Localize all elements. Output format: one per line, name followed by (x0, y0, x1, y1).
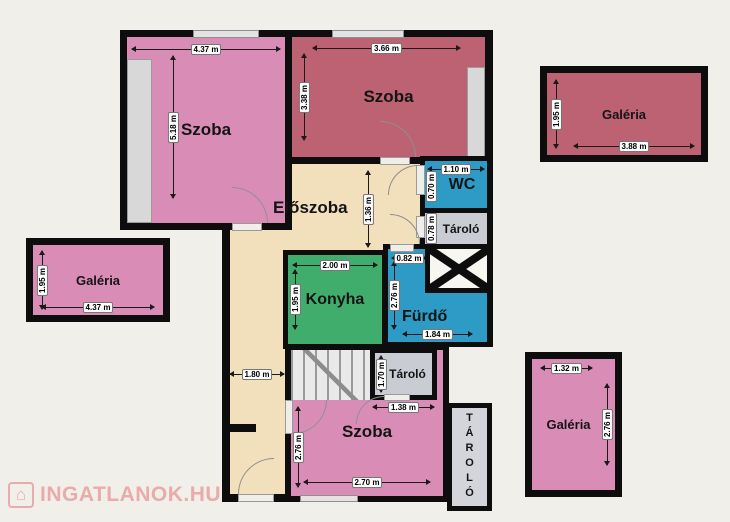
door-opening (390, 244, 414, 252)
stairwell-void-hatch (425, 244, 492, 293)
watermark-text: INGATLANOK.HU (40, 483, 221, 507)
house-icon: ⌂ (8, 482, 34, 508)
dim-height: 1.95 m (550, 79, 562, 149)
door-opening (238, 494, 274, 502)
closet-strip (467, 67, 485, 157)
dim-height: 3.38 m (298, 53, 310, 141)
dim-height: 2.76 m (388, 261, 400, 330)
dim-width: 3.66 m (312, 42, 461, 54)
dim-hall-depth: 1.36 m (362, 170, 374, 248)
dim-height: 0.70 m (425, 171, 437, 202)
wall-stub (222, 424, 256, 432)
room-label: Szoba (342, 422, 392, 442)
room-label: Szoba (181, 120, 231, 140)
dim-width: 2.70 m (303, 476, 431, 488)
door-opening (384, 394, 410, 401)
window (193, 30, 259, 38)
room-szoba-top-left: 4.37 m 5.18 m Szoba (120, 30, 292, 230)
room-label: Konyha (306, 291, 365, 309)
dim-width: 4.37 m (131, 43, 281, 55)
room-label: Fürdő (402, 308, 447, 326)
floor-plan: 4.37 m 5.18 m Szoba 3.66 m 3.38 m Szoba … (0, 0, 730, 522)
room-label: Tároló (389, 367, 426, 381)
room-label: Tároló (443, 222, 480, 236)
dim-height: 0.78 m (425, 214, 437, 243)
dim-height: 5.18 m (167, 55, 179, 199)
room-label-eloszoba: Előszoba (273, 198, 348, 218)
dim-width: 1.84 m (402, 328, 473, 340)
closet-strip (127, 59, 152, 223)
room-label: Szoba (363, 87, 413, 107)
door-opening (285, 400, 293, 434)
door-opening (380, 157, 410, 165)
dim-height: 1.70 m (375, 355, 387, 393)
room-label: TÁROLÓ (464, 412, 476, 502)
dim-height: 2.76 m (601, 383, 613, 466)
room-tarolo-vertical: TÁROLÓ (447, 403, 492, 511)
room-label: Galéria (602, 107, 646, 122)
room-label: WC (449, 176, 476, 194)
dim-corridor-width: 1.80 m (229, 368, 285, 380)
dim-top-width: 0.82 m (391, 252, 427, 264)
watermark: ⌂ INGATLANOK.HU (8, 482, 221, 508)
room-tarolo-middle: 1.70 m Tároló (370, 348, 437, 400)
room-tarolo-upper: 0.78 m Tároló (420, 208, 492, 249)
room-label: Galéria (546, 417, 590, 432)
window (300, 495, 358, 502)
room-label: Galéria (76, 273, 120, 288)
room-galeria-bottom-right: 1.32 m 2.76 m Galéria (525, 352, 622, 497)
door-opening (232, 223, 262, 231)
dim-width: 2.00 m (292, 259, 378, 271)
dim-width: 4.37 m (41, 301, 155, 313)
dim-width: 1.32 m (540, 362, 593, 374)
dim-width: 3.88 m (573, 140, 695, 152)
room-galeria-right: 1.95 m 3.88 m Galéria (540, 66, 708, 162)
room-konyha: 2.00 m 1.95 m Konyha (283, 250, 387, 349)
dim-height: 1.95 m (289, 269, 301, 330)
room-galeria-left: 1.95 m 4.37 m Galéria (26, 238, 170, 322)
window (332, 30, 404, 38)
wall-corridor-left (222, 224, 230, 502)
room-wc: 1.10 m 0.70 m WC (420, 156, 492, 213)
stairs (291, 350, 374, 400)
